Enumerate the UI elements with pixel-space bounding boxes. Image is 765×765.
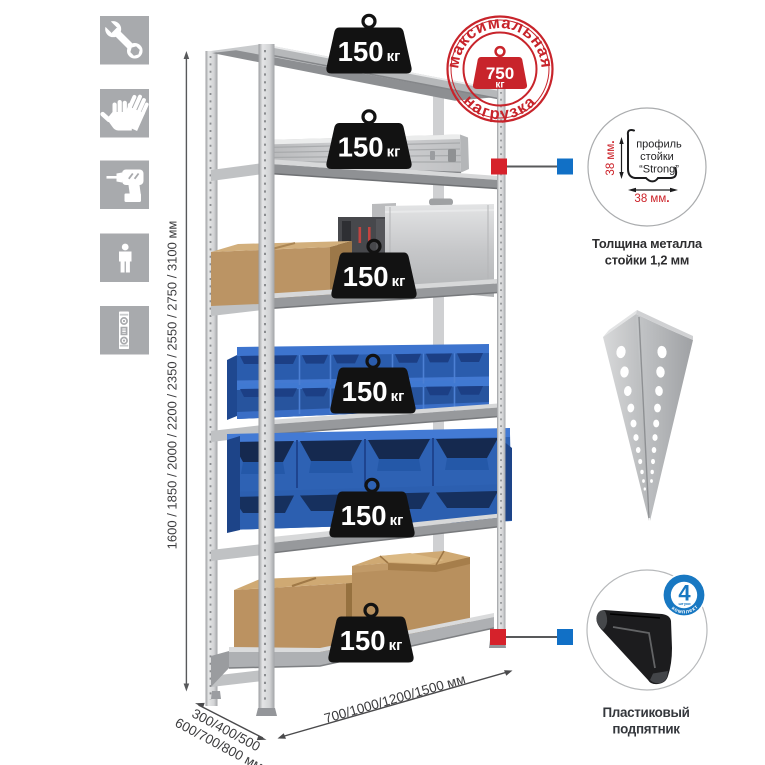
svg-text:38 мм.: 38 мм. bbox=[634, 191, 669, 205]
svg-text:Пластиковый: Пластиковый bbox=[602, 705, 689, 720]
svg-text:штуки: штуки bbox=[678, 601, 691, 606]
svg-text:стойки 1,2 мм: стойки 1,2 мм bbox=[605, 253, 689, 268]
svg-text:1600 / 1850 / 2000 / 2200 / 23: 1600 / 1850 / 2000 / 2200 / 2350 / 2550 … bbox=[165, 221, 180, 550]
svg-text:профиль: профиль bbox=[636, 139, 682, 151]
svg-text:“Strong”: “Strong” bbox=[639, 164, 679, 176]
svg-text:стойки: стойки bbox=[640, 151, 674, 163]
svg-text:38 мм.: 38 мм. bbox=[603, 140, 617, 175]
svg-text:кг: кг bbox=[495, 80, 504, 91]
svg-text:Толщина металла: Толщина металла bbox=[592, 236, 703, 251]
svg-text:подпятник: подпятник bbox=[612, 722, 680, 737]
